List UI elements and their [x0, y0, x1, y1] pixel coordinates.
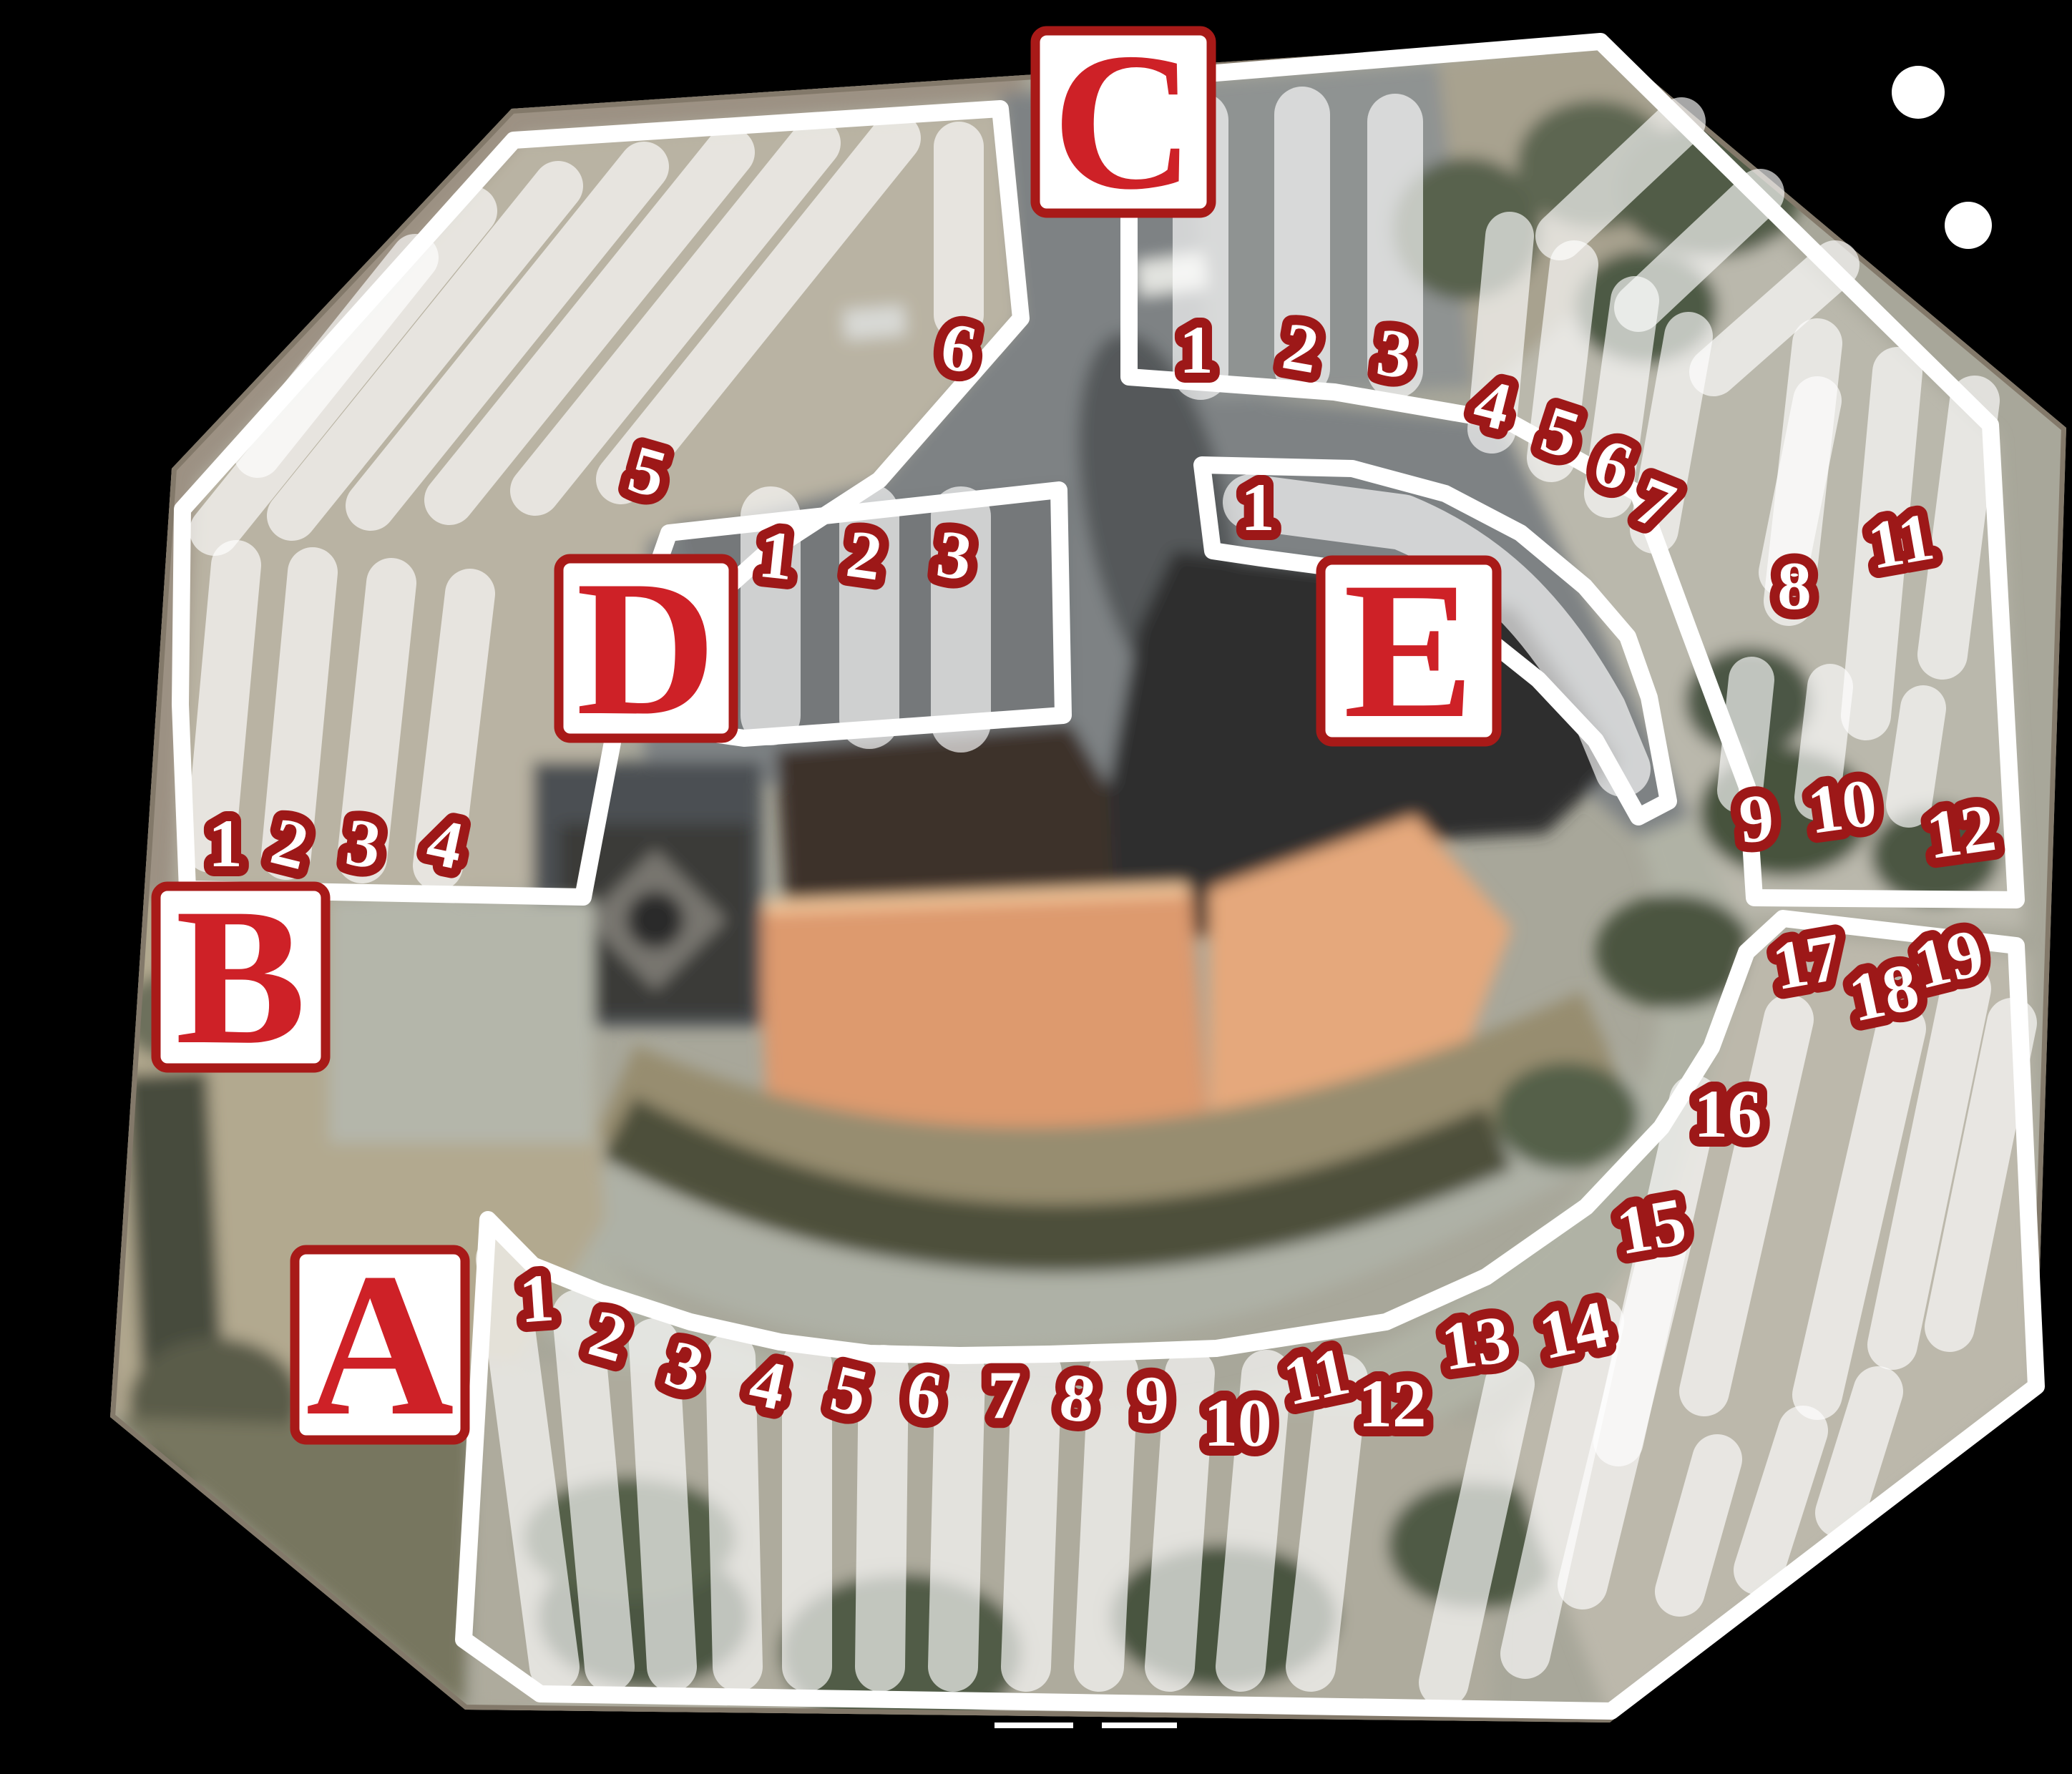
svg-text:B: B — [175, 868, 306, 1085]
svg-text:11: 11 — [1862, 498, 1939, 584]
svg-text:13: 13 — [1437, 1300, 1515, 1385]
svg-text:15: 15 — [1611, 1183, 1691, 1270]
svg-text:E: E — [1344, 542, 1475, 759]
svg-text:12: 12 — [1359, 1366, 1427, 1441]
svg-text:1: 1 — [1179, 312, 1213, 388]
svg-text:7: 7 — [987, 1357, 1022, 1433]
svg-text:9: 9 — [1736, 779, 1777, 858]
svg-text:1: 1 — [517, 1259, 557, 1337]
svg-text:16: 16 — [1694, 1076, 1762, 1152]
svg-text:D: D — [576, 541, 716, 755]
svg-text:9: 9 — [1135, 1362, 1169, 1438]
svg-text:12: 12 — [1922, 789, 2000, 873]
svg-text:10: 10 — [1204, 1385, 1272, 1461]
svg-text:1: 1 — [208, 805, 243, 881]
svg-text:17: 17 — [1767, 918, 1847, 1005]
svg-text:1: 1 — [1241, 469, 1275, 545]
svg-text:10: 10 — [1803, 764, 1881, 848]
svg-text:A: A — [306, 1231, 454, 1459]
svg-text:C: C — [1052, 13, 1195, 230]
svg-text:8: 8 — [1777, 548, 1812, 624]
